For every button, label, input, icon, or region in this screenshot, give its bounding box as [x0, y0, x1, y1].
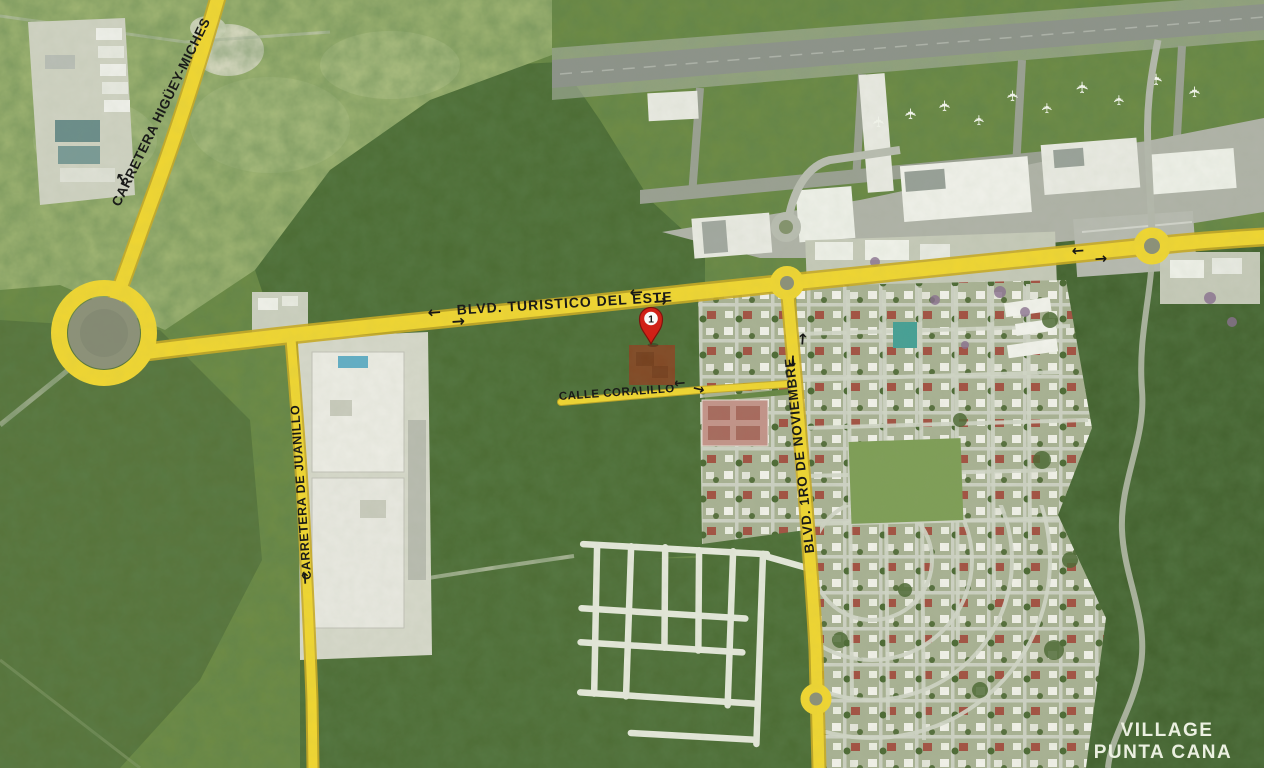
- airplane-icon: ✈: [972, 114, 988, 126]
- parcel-highlight[interactable]: [629, 345, 675, 385]
- airplane-icon: ✈: [1004, 89, 1022, 102]
- arrow-right-icon: →: [1094, 249, 1108, 268]
- place-label-village-line2: PUNTA CANA: [1094, 742, 1233, 763]
- marker-number: 1: [648, 314, 654, 326]
- airplane-icon: ✈: [1186, 85, 1204, 98]
- airplane-icon: ✈: [870, 115, 888, 128]
- airplane-icon: ✈: [1073, 81, 1092, 94]
- arrow-up-icon: ↑: [796, 330, 810, 349]
- arrow-left-icon: ←: [427, 302, 442, 322]
- airplane-icon: ✈: [1112, 94, 1128, 106]
- arrow-left-icon: ←: [673, 375, 686, 392]
- airplane-icon: ✈: [1040, 102, 1056, 114]
- map-image: ✈ ✈ ✈ ✈ ✈ ✈ ✈ ✈ ✈ ✈: [0, 0, 1264, 768]
- place-label-village-line1: VILLAGE: [1121, 720, 1214, 741]
- airplane-icon: ✈: [936, 99, 954, 112]
- satellite-map-canvas[interactable]: ✈ ✈ ✈ ✈ ✈ ✈ ✈ ✈ ✈ ✈: [0, 0, 1264, 768]
- airplane-icon: ✈: [902, 107, 920, 120]
- arrow-left-icon: ←: [1071, 241, 1085, 260]
